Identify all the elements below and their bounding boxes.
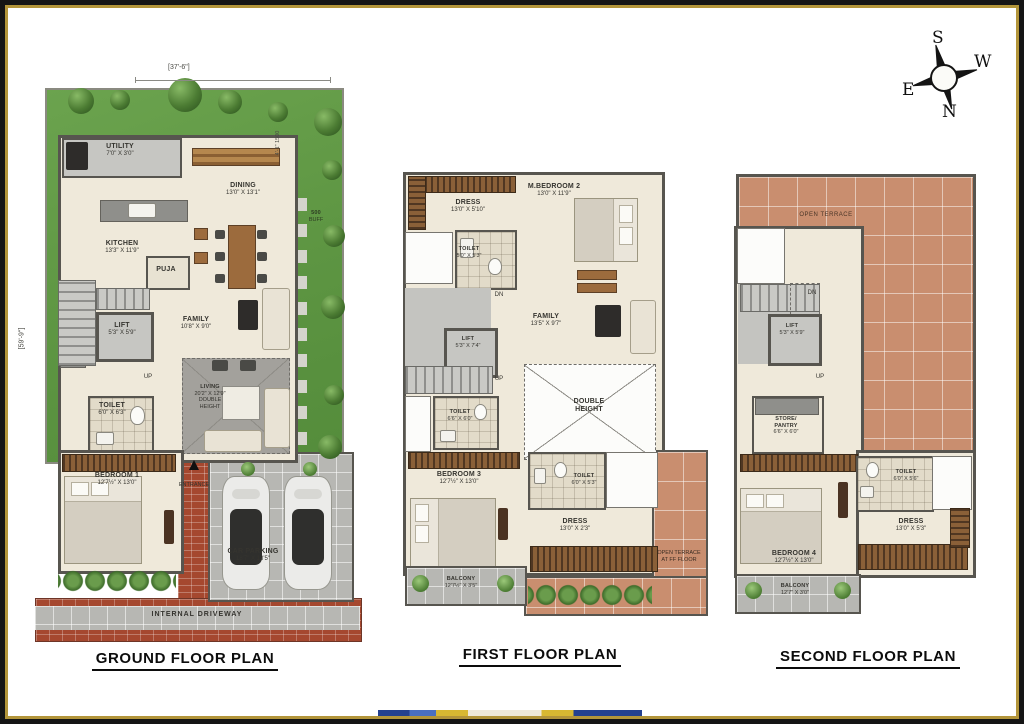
floor-plan-sheet: [37'-6"] [59'-9"] 4'-1" 1500 UTILITY 7'0… (0, 0, 1024, 724)
outer-border (0, 0, 1024, 724)
